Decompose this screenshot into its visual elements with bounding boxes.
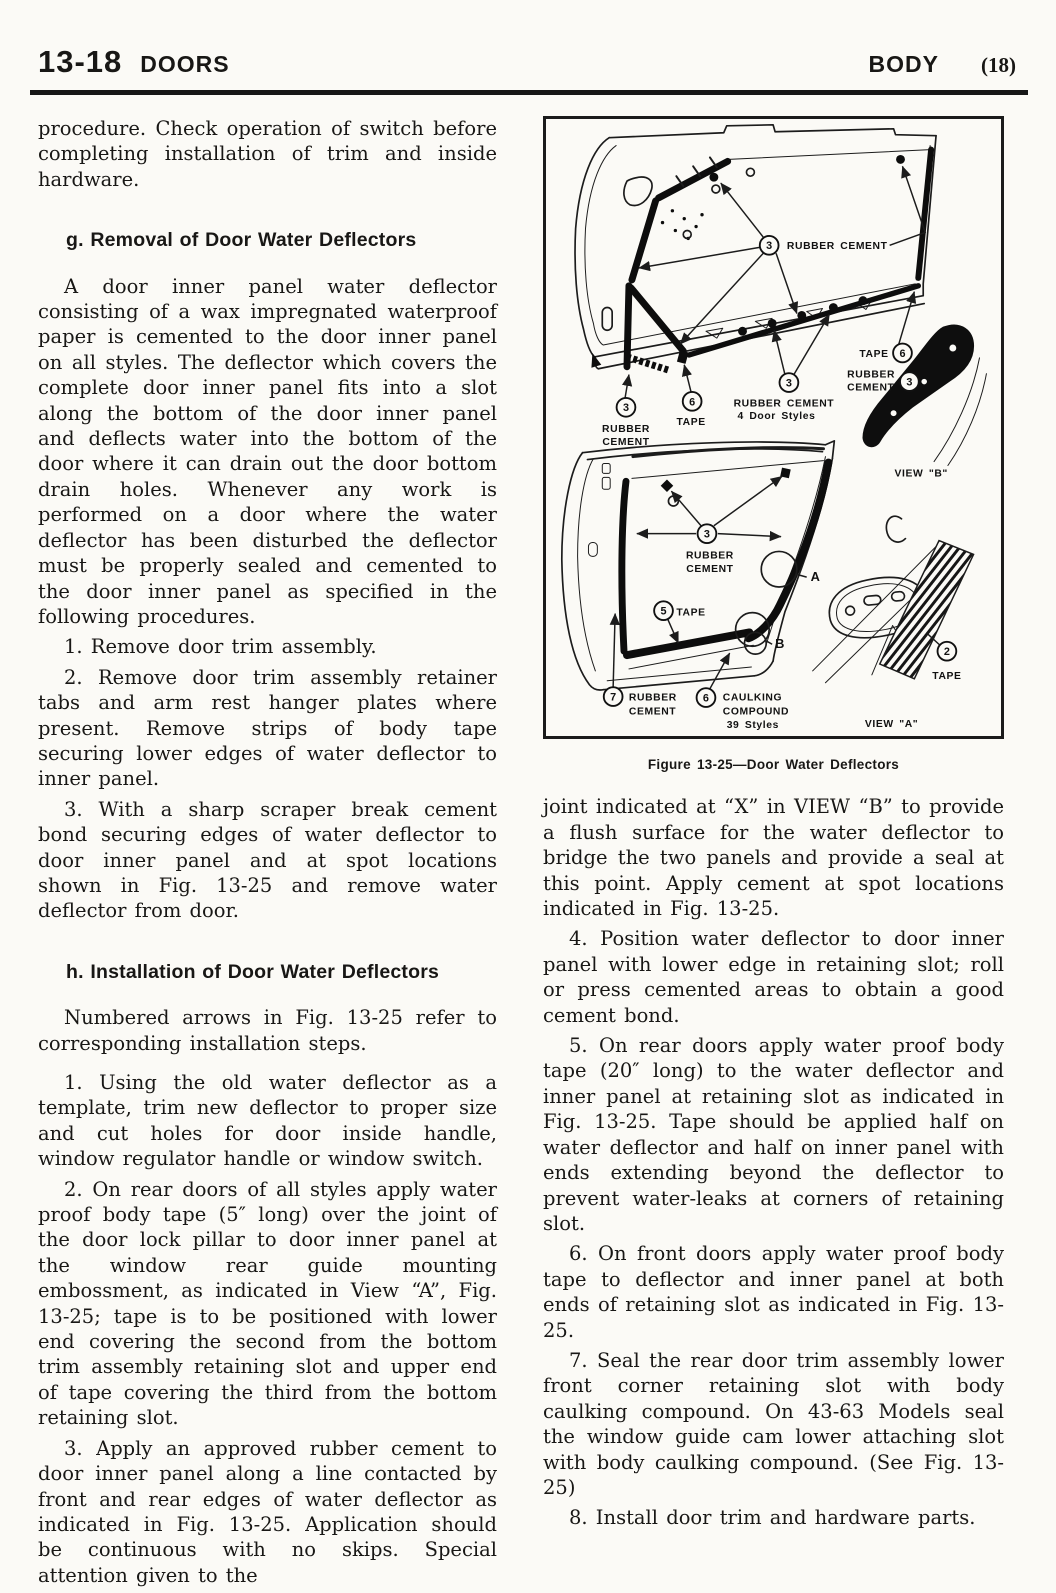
figure-label: TAPE [677, 417, 706, 428]
figure-frame: 36333635762RUBBER CEMENTTAPERUBBERCEMENT… [543, 116, 1004, 739]
figure-13-25: 36333635762RUBBER CEMENTTAPERUBBERCEMENT… [543, 116, 1004, 777]
paragraph-removal-body: A door inner panel water deflector consi… [38, 274, 497, 630]
installation-step-3: 3. Apply an approved rubber cement to do… [38, 1436, 497, 1588]
svg-text:6: 6 [703, 693, 709, 705]
figure-label: CEMENT [602, 437, 649, 448]
svg-text:3: 3 [766, 240, 772, 252]
figure-label: VIEW "A" [865, 719, 918, 730]
page-header: 13-18 DOORS BODY (18) [0, 0, 1056, 80]
page-number: (18) [981, 53, 1016, 78]
installation-step-5: 5. On rear doors apply water proof body … [543, 1033, 1004, 1236]
figure-label: RUBBER CEMENT [734, 398, 835, 409]
figure-label: A [811, 569, 821, 584]
figure-label: COMPOUND [723, 706, 789, 717]
figure-label: 4 Door Styles [738, 411, 816, 422]
installation-step-1: 1. Using the old water deflector as a te… [38, 1070, 497, 1172]
figure-label: B [775, 636, 785, 651]
figure-label: 39 Styles [727, 720, 779, 731]
svg-text:6: 6 [689, 396, 695, 408]
figure-label: RUBBER [629, 693, 677, 704]
chapter-title: BODY [869, 51, 939, 78]
removal-step-1: 1. Remove door trim assembly. [38, 634, 497, 659]
figure-label: RUBBER CEMENT [787, 241, 888, 252]
figure-label: RUBBER [686, 550, 734, 561]
installation-intro: Numbered arrows in Fig. 13-25 refer to c… [38, 1005, 497, 1056]
section-number: 13-18 [38, 44, 122, 80]
section-title: DOORS [140, 51, 229, 78]
manual-page: 13-18 DOORS BODY (18) procedure. Check o… [0, 0, 1056, 1478]
header-right: BODY (18) [869, 51, 1016, 78]
installation-step-4: 4. Position water deflector to door inne… [543, 926, 1004, 1028]
figure-label: TAPE [859, 349, 888, 360]
heading-removal: g. Removal of Door Water Deflectors [66, 228, 497, 253]
svg-text:3: 3 [623, 402, 629, 414]
header-rule [30, 90, 1028, 95]
figure-label: RUBBER [602, 424, 650, 435]
figure-label: CEMENT [847, 382, 894, 393]
installation-step-6: 6. On front doors apply water proof body… [543, 1241, 1004, 1343]
svg-text:2: 2 [944, 646, 950, 658]
removal-step-3: 3. With a sharp scraper break cement bon… [38, 797, 497, 924]
svg-text:6: 6 [899, 348, 905, 360]
figure-label: TAPE [932, 671, 961, 682]
figure-caption: Figure 13-25—Door Water Deflectors [543, 752, 1004, 777]
view-a-detail [813, 541, 974, 683]
figure-label: RUBBER [847, 370, 895, 381]
svg-text:7: 7 [610, 692, 616, 704]
figure-label: VIEW "B" [895, 468, 948, 479]
figure-label: CEMENT [686, 564, 733, 575]
removal-step-2: 2. Remove door trim assembly retainer ta… [38, 665, 497, 792]
figure-label: CAULKING [723, 693, 782, 704]
paragraph-continuation: procedure. Check operation of switch bef… [38, 116, 497, 192]
installation-step-8: 8. Install door trim and hardware parts. [543, 1505, 1004, 1530]
right-column: 36333635762RUBBER CEMENTTAPERUBBERCEMENT… [543, 116, 1004, 1536]
installation-step-2: 2. On rear doors of all styles apply wat… [38, 1177, 497, 1431]
figure-label: TAPE [676, 608, 705, 619]
paragraph-joint-continuation: joint indicated at “X” in VIEW “B” to pr… [543, 794, 1004, 921]
header-left: 13-18 DOORS [38, 44, 230, 80]
left-column: procedure. Check operation of switch bef… [38, 116, 497, 1593]
svg-text:3: 3 [906, 377, 912, 389]
svg-text:5: 5 [660, 606, 666, 618]
figure-label: CEMENT [629, 706, 676, 717]
content-columns: procedure. Check operation of switch bef… [0, 104, 1056, 1478]
heading-installation: h. Installation of Door Water Deflectors [66, 960, 497, 985]
svg-text:3: 3 [786, 378, 792, 390]
figure-illustration: 36333635762RUBBER CEMENTTAPERUBBERCEMENT… [546, 119, 1019, 736]
svg-text:3: 3 [704, 529, 710, 541]
